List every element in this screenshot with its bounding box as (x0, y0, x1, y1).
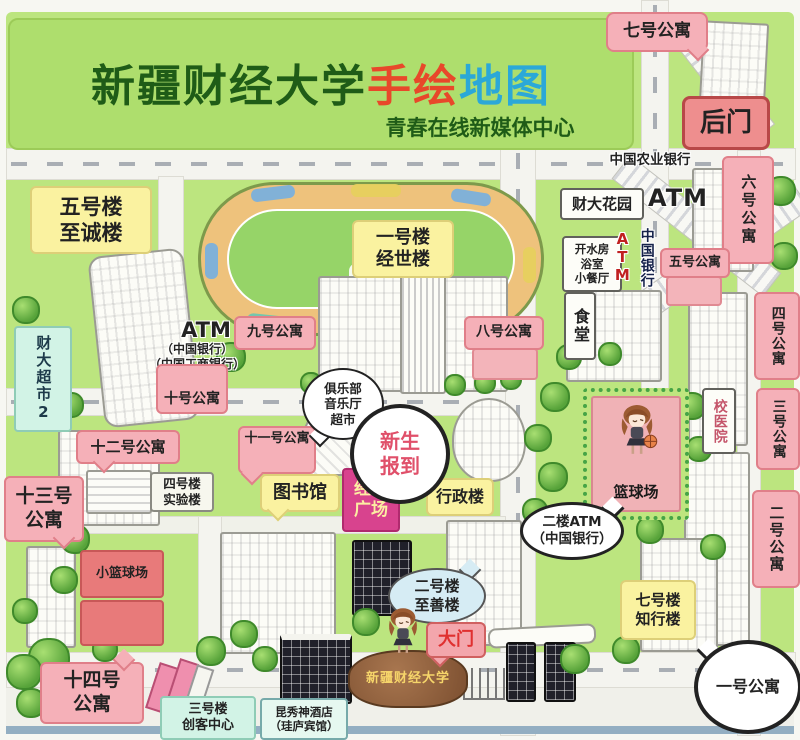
page-title: 新疆财经大学手绘地图 (10, 50, 632, 114)
basketball-court-inner: 篮球场 (591, 396, 681, 512)
tree (598, 342, 622, 366)
tree (612, 636, 640, 664)
label-bank-of-china-vertical: 中国银行 (634, 222, 658, 294)
label-apt4: 四号公寓 (754, 292, 800, 380)
label-agricultural-bank: 中国农业银行 (596, 152, 704, 168)
building-left-low (26, 546, 76, 648)
label-building1: 一号楼 经世楼 (352, 220, 454, 278)
label-canteen: 食堂 (564, 292, 596, 360)
track-patch (523, 247, 536, 283)
tree (770, 242, 798, 270)
label-freshman-checkin: 新生 报到 (350, 404, 450, 504)
gate-pillar (506, 642, 536, 702)
tree (560, 644, 590, 674)
school-stone-sign: 新疆财经大学 (348, 650, 468, 708)
subtitle: 青春在线新媒体中心 (330, 112, 630, 142)
label-apt8: 八号公寓 (464, 316, 544, 350)
tree (230, 620, 258, 648)
label-apt3: 三号公寓 (756, 388, 800, 470)
label-building7: 七号楼 知行楼 (620, 580, 696, 640)
label-atm-top: ATM (650, 184, 706, 212)
tree (252, 646, 278, 672)
tree (444, 374, 466, 396)
track-patch (351, 184, 401, 197)
tree (700, 534, 726, 560)
pink-block (472, 348, 538, 380)
label-apt12: 十二号公寓 (76, 430, 180, 464)
anime-girl-icon (615, 404, 659, 458)
building-no1-tower (400, 270, 446, 394)
tree (12, 296, 40, 324)
label-caida-garden: 财大花园 (560, 188, 644, 220)
track-patch (450, 188, 492, 207)
tree (352, 608, 380, 636)
label-building4-lab: 四号楼 实验楼 (150, 472, 214, 512)
title-banner: 新疆财经大学手绘地图 青春在线新媒体中心 (8, 18, 634, 150)
tree (6, 654, 42, 690)
tree (636, 516, 664, 544)
tree (50, 566, 78, 594)
tree (524, 424, 552, 452)
label-back-gate: 后门 (682, 96, 770, 150)
label-main-gate: 大门 (426, 622, 486, 658)
label-building5: 五号楼 至诚楼 (30, 186, 152, 254)
label-apt6: 六号公寓 (722, 156, 774, 264)
label-apt10: 十号公寓 (156, 364, 228, 414)
label-apt2: 二号公寓 (752, 490, 800, 588)
pink-block (666, 276, 722, 306)
tree (538, 462, 568, 492)
label-apt1-bubble: 一号公寓 (694, 640, 800, 734)
title-map: 地图 (459, 61, 551, 112)
label-apt5: 五号公寓 (660, 248, 730, 278)
label-atm-2f: 二楼ATM （中国银行） (520, 502, 624, 560)
small-basketball-court: 小篮球场 (80, 550, 164, 598)
tree (196, 636, 226, 666)
label-building3-makerspace: 三号楼 创客中心 (160, 696, 256, 740)
tree (12, 598, 38, 624)
track-patch (205, 243, 218, 279)
label-hotel: 昆秀神酒店 （珪庐宾馆） (260, 698, 348, 740)
label-hospital: 校医院 (702, 388, 736, 454)
basketball-court-label: 篮球场 (613, 481, 658, 502)
label-apt9: 九号公寓 (234, 316, 316, 350)
building-round (452, 398, 526, 482)
gate-fence (463, 668, 505, 700)
label-atm-vertical: ATM (612, 228, 632, 286)
campus-map: 新疆财经大学手绘地图 青春在线新媒体中心 新疆财经大学 (0, 0, 800, 740)
tree (540, 382, 570, 412)
small-court-2 (80, 600, 164, 646)
building-lab (86, 470, 152, 514)
track-patch (250, 184, 295, 202)
anime-girl-icon (384, 606, 422, 658)
bottom-curb (6, 726, 794, 734)
basketball-court: 篮球场 (583, 388, 689, 520)
road-dash (11, 400, 501, 404)
label-apt14: 十四号 公寓 (40, 662, 144, 724)
label-apt13: 十三号 公寓 (4, 476, 84, 542)
title-handdrawn: 手绘 (367, 61, 459, 112)
building-hotel (280, 634, 352, 704)
label-supermarket: 财大超市2 (14, 326, 72, 432)
title-school: 新疆财经大学 (91, 61, 367, 112)
